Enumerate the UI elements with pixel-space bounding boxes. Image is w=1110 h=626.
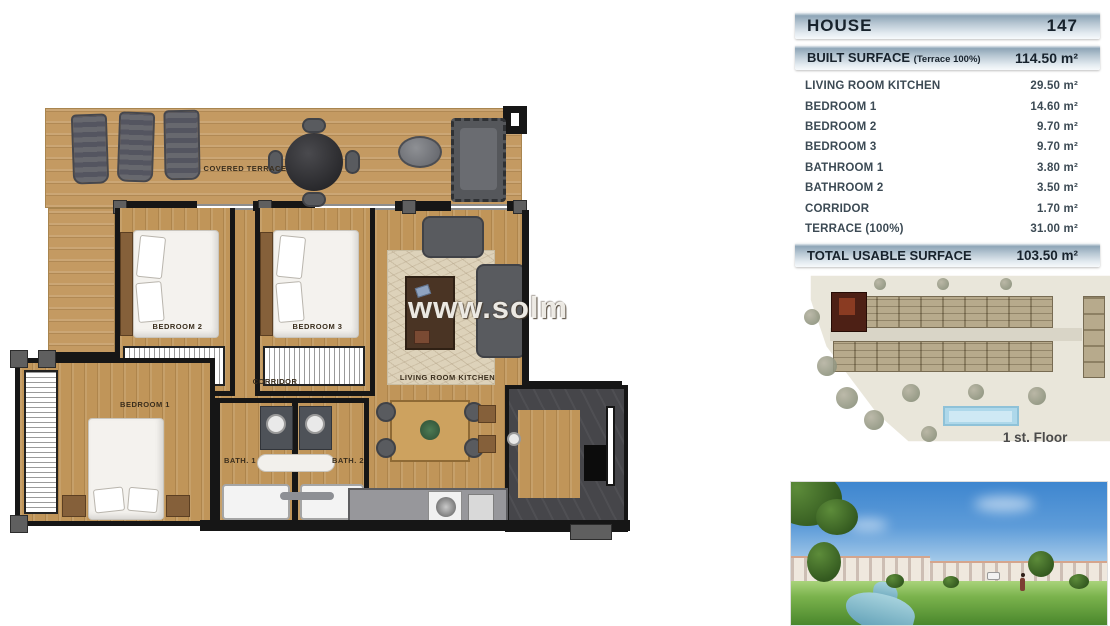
house-number: 147 xyxy=(1047,16,1078,36)
room-label-bedroom-3: BEDROOM 3 xyxy=(260,322,375,331)
bed-pillow xyxy=(275,281,304,323)
tree xyxy=(874,278,886,290)
total-surface-label: TOTAL USABLE SURFACE xyxy=(807,248,972,263)
tree xyxy=(804,309,820,325)
terrace-round-table xyxy=(285,133,343,191)
dining-chair xyxy=(376,438,396,458)
photo-bush xyxy=(1069,574,1089,589)
pillar-core xyxy=(511,113,519,126)
bath-mat xyxy=(257,454,335,472)
room-label-corridor: CORRIDOR xyxy=(210,377,340,386)
surface-row: BEDROOM 114.60 m² xyxy=(795,96,1100,116)
bed-pillow xyxy=(136,235,166,279)
surface-row: CORRIDOR1.70 m² xyxy=(795,198,1100,218)
washing-machine-door xyxy=(436,497,456,517)
tree xyxy=(1000,278,1012,290)
watermark: www.solm xyxy=(408,290,568,326)
room-label-living-room-kitchen: LIVING ROOM KITCHEN xyxy=(365,373,530,382)
built-surface-bar: BUILT SURFACE (Terrace 100%) 114.50 m² xyxy=(795,45,1100,70)
built-surface-value: 114.50 m² xyxy=(1015,50,1078,66)
kitchen-floor xyxy=(518,410,580,498)
building-photo xyxy=(790,481,1108,626)
corner-pillar xyxy=(38,350,56,368)
bed-pillow xyxy=(276,235,306,279)
bath-fixture xyxy=(280,492,334,500)
floor-level-label: 1 st. Floor xyxy=(1003,430,1068,445)
table-plant xyxy=(420,420,440,440)
armchair xyxy=(422,216,484,258)
terrace-chair xyxy=(302,118,326,133)
house-label: HOUSE xyxy=(807,16,872,36)
sun-lounger xyxy=(117,111,155,182)
built-surface-note: (Terrace 100%) xyxy=(914,54,981,65)
bed-pillow xyxy=(135,281,164,323)
kitchen-window xyxy=(606,406,615,486)
room-label-bath-1: BATH. 1 xyxy=(218,456,262,465)
pool-water xyxy=(949,411,1012,422)
brochure-page: COVERED TERRACE BEDROOM 2 BEDROOM 3 CORR… xyxy=(0,0,1110,626)
corner-pillar xyxy=(10,515,28,533)
surface-row: BEDROOM 29.70 m² xyxy=(795,117,1100,137)
driveway xyxy=(830,328,1082,341)
photo-golfer-body xyxy=(1020,578,1025,591)
wardrobe xyxy=(24,370,58,514)
tree xyxy=(817,356,837,376)
photo-golf-cart xyxy=(987,572,1000,580)
highlighted-unit-detail xyxy=(839,298,855,315)
bed-pillow xyxy=(93,486,125,513)
photo-golfer-head xyxy=(1021,573,1025,577)
tree xyxy=(836,387,858,409)
counter-sink xyxy=(468,494,494,522)
surface-row: BEDROOM 39.70 m² xyxy=(795,137,1100,157)
terrace-chair xyxy=(302,192,326,207)
room-label-bedroom-1: BEDROOM 1 xyxy=(75,400,215,409)
bath-sink xyxy=(266,414,286,434)
building-right xyxy=(1083,296,1105,378)
surface-row: BATHROOM 23.50 m² xyxy=(795,178,1100,198)
dining-chair xyxy=(376,402,396,422)
corner-pillar xyxy=(10,350,28,368)
terrace-floor-left xyxy=(48,208,115,358)
floor-plan: COVERED TERRACE BEDROOM 2 BEDROOM 3 CORR… xyxy=(10,100,628,550)
building-row-bottom xyxy=(833,341,1054,373)
kitchen-sink xyxy=(507,432,521,446)
tree xyxy=(864,410,884,430)
bathtub xyxy=(222,484,290,520)
surface-row: LIVING ROOM KITCHEN29.50 m² xyxy=(795,76,1100,96)
total-surface-bar: TOTAL USABLE SURFACE 103.50 m² xyxy=(795,243,1100,267)
room-label-covered-terrace: COVERED TERRACE xyxy=(160,164,330,173)
house-header-bar: HOUSE 147 xyxy=(795,12,1100,39)
bed-headboard xyxy=(260,232,273,336)
terrace-chair xyxy=(345,150,360,174)
table-decor xyxy=(414,330,430,344)
nightstand xyxy=(166,495,190,517)
cooktop xyxy=(584,445,606,481)
wall-pillar xyxy=(402,200,416,214)
terrace-side-table xyxy=(398,136,442,168)
nightstand xyxy=(62,495,86,517)
total-surface-value: 103.50 m² xyxy=(1016,248,1078,263)
built-surface-label: BUILT SURFACE (Terrace 100%) xyxy=(807,50,981,65)
tree xyxy=(968,384,984,400)
entrance-step xyxy=(570,524,612,540)
terrace-sofa-cushion xyxy=(460,128,497,190)
bottom-wall xyxy=(200,520,630,531)
room-label-bath-2: BATH. 2 xyxy=(326,456,370,465)
surface-table: LIVING ROOM KITCHEN29.50 m² BEDROOM 114.… xyxy=(795,76,1100,239)
photo-palm xyxy=(1028,551,1054,577)
bath-sink xyxy=(305,414,325,434)
bed-pillow xyxy=(127,487,159,514)
photo-bush xyxy=(886,574,904,588)
surface-row: TERRACE (100%)31.00 m² xyxy=(795,219,1100,239)
tree xyxy=(902,384,920,402)
bar-stool xyxy=(478,405,496,423)
photo-palm xyxy=(807,542,841,582)
bar-stool xyxy=(478,435,496,453)
room-label-bedroom-2: BEDROOM 2 xyxy=(120,322,235,331)
bed-headboard xyxy=(120,232,133,336)
tree xyxy=(937,278,949,290)
site-plan: 1 st. Floor xyxy=(795,272,1110,458)
surface-row: BATHROOM 13.80 m² xyxy=(795,158,1100,178)
sun-lounger xyxy=(71,113,109,184)
